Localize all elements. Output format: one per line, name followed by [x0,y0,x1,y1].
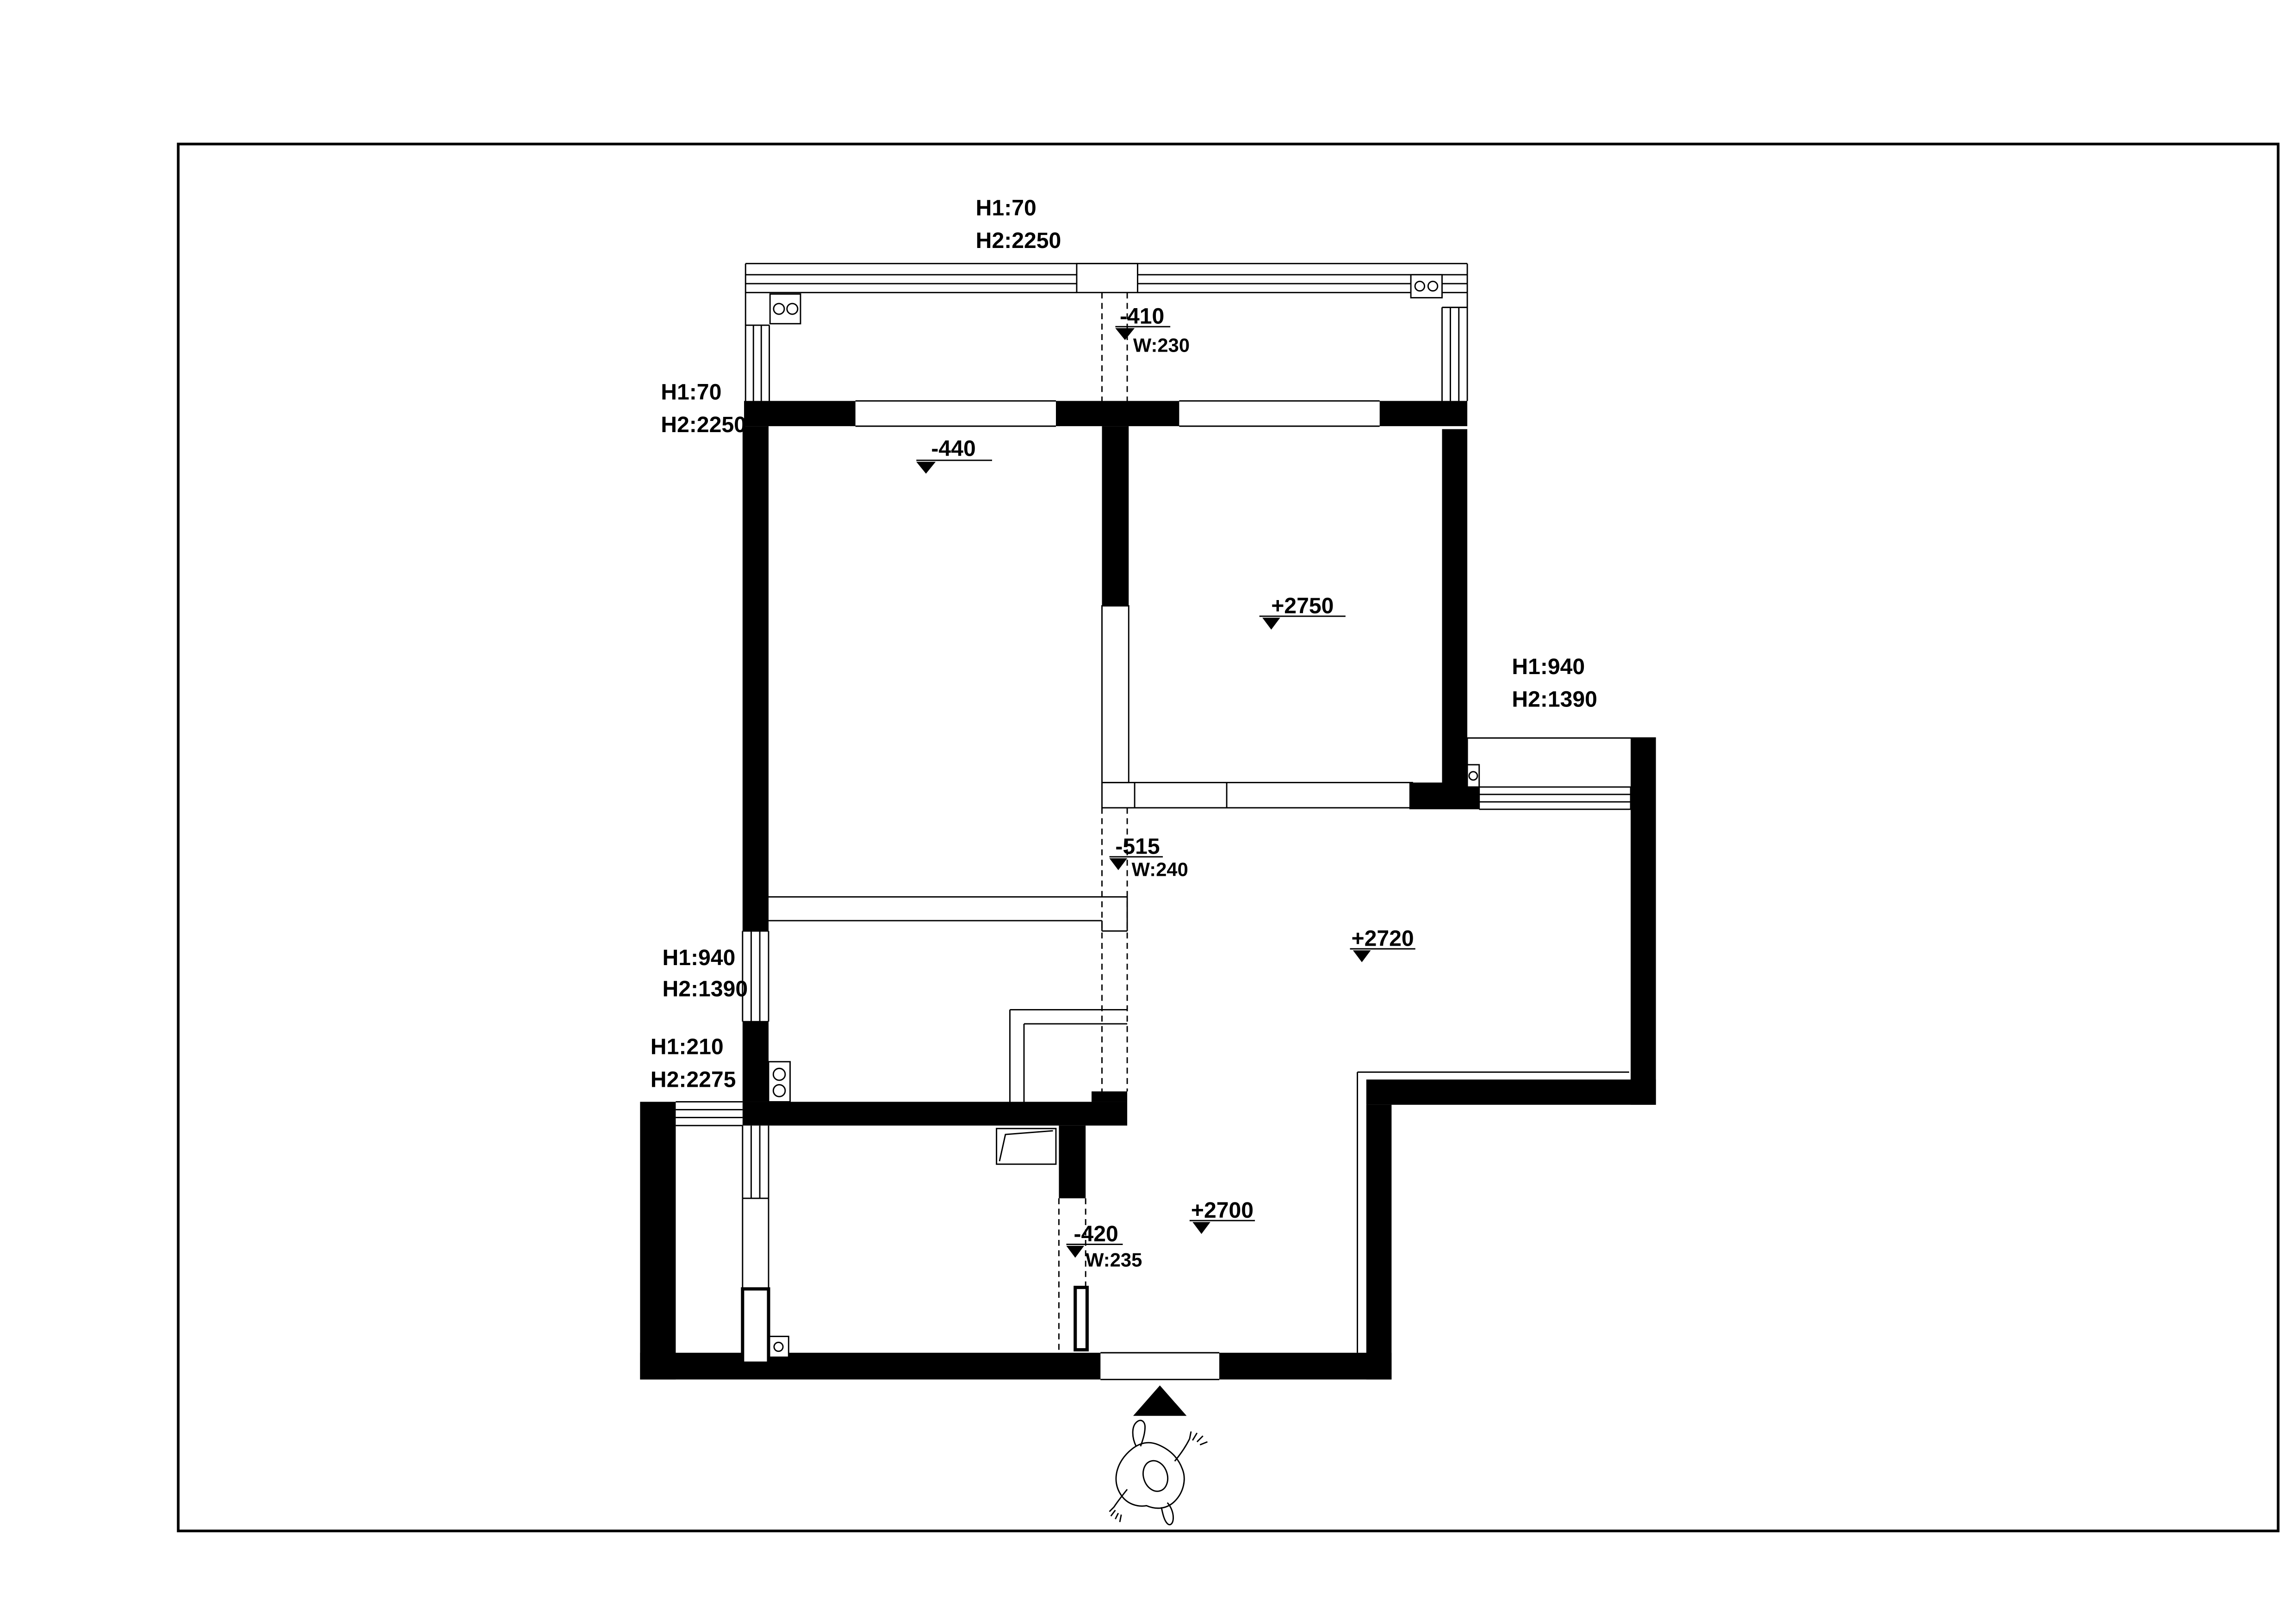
beam-entry-drop: -420 [1074,1221,1118,1246]
beam-entry-annotation: -420 W:235 [1066,1221,1142,1271]
door-swing-kitchen [997,1128,1056,1164]
openings [856,401,1629,1380]
partition-bedroom-lower [1102,606,1129,782]
beam-entry-width: W:235 [1086,1249,1142,1271]
partition-bedroom-south [1102,782,1413,808]
window-balcony-top [745,264,1467,401]
level-marker-triangle [916,462,936,474]
wall-left-mid [743,1022,769,1102]
wall-bottom-right [1219,1353,1391,1380]
wall-left-lower [640,1102,676,1379]
level-marker-triangle [1066,1246,1084,1258]
wall-interior-bedroom [1102,426,1129,606]
wall-kitchen-band-step [1092,1091,1127,1102]
floor-plan: H1:70 H2:2250 H1:70 H2:2250 H1:940 H2:13… [0,0,2296,1623]
wall-entry-right [1366,1105,1392,1380]
wall-bedroom-right [1442,429,1467,787]
wall-top-seg1 [744,401,856,427]
window-mullion [1077,264,1138,293]
label-balcony-left-h1: H1:70 [661,379,721,404]
label-bay-right-h1: H1:940 [1512,654,1585,679]
beam-mid-width: W:240 [1132,859,1188,880]
double-circle-symbol-left [770,294,800,323]
wall-right-exterior [1631,738,1656,1105]
beam-top-drop: -440 [931,436,975,461]
double-circle-symbol-kitchen [769,1062,790,1102]
window-balcony-right [1442,307,1467,401]
wall-bottom-left [640,1353,1100,1380]
label-window-left-h2: H2:1390 [662,977,748,1002]
sheet-border [178,144,2278,1531]
beam-balcony-drop: -410 [1120,304,1164,329]
person-figure [1110,1420,1208,1524]
wall-entry-door-stub [1059,1126,1086,1198]
circle-symbol-bath [769,1337,788,1357]
level-bedroom-annotation: +2750 [1260,594,1346,630]
beam-balcony-width: W:230 [1133,335,1190,356]
level-marker-triangle [1115,328,1135,340]
entrance-arrow [1133,1385,1187,1416]
label-balcony-top-h2: H2:2250 [976,228,1061,253]
wall-top-seg2 [1056,401,1179,427]
circle-symbol-bay [1467,765,1479,787]
level-bedroom-value: +2750 [1271,594,1334,619]
label-balcony-top-h1: H1:70 [976,195,1036,220]
level-dining-annotation: +2720 [1350,926,1415,962]
drawing-sheet: H1:70 H2:2250 H1:70 H2:2250 H1:940 H2:13… [0,0,2296,1623]
wall-top-seg3 [1380,401,1467,427]
wall-kitchen-band [743,1102,1127,1125]
window-bath-partition [743,1126,769,1198]
label-window-left-low-h1: H1:210 [651,1035,724,1059]
window-balcony-left [745,325,769,401]
double-circle-symbol-right [1411,275,1442,298]
door-leaf-entry [1075,1288,1087,1350]
wall-left-upper [743,426,769,931]
label-bay-right-h2: H2:1390 [1512,687,1597,712]
beam-top-annotation: -440 [916,436,992,474]
beam-mid-drop: -515 [1115,834,1160,859]
window-left-low [676,1102,742,1125]
door-leaf-bath [743,1289,769,1363]
level-entry-value: +2700 [1191,1198,1253,1223]
level-entry-annotation: +2700 [1190,1198,1255,1234]
label-window-left-low-h2: H2:2275 [651,1067,736,1092]
level-marker-triangle [1192,1222,1210,1234]
level-marker-triangle [1110,858,1128,870]
level-marker-triangle [1353,950,1371,962]
walls [640,401,1656,1380]
wall-right-band [1366,1079,1656,1105]
level-marker-triangle [1262,618,1280,630]
label-window-left-h1: H1:940 [662,945,735,970]
level-dining-value: +2720 [1352,926,1414,951]
label-balcony-left-h2: H2:2250 [661,412,746,437]
window-bay-east [1467,738,1656,809]
beam-balcony-annotation: -410 W:230 [1115,304,1190,356]
beam-mid-annotation: -515 W:240 [1110,834,1188,880]
